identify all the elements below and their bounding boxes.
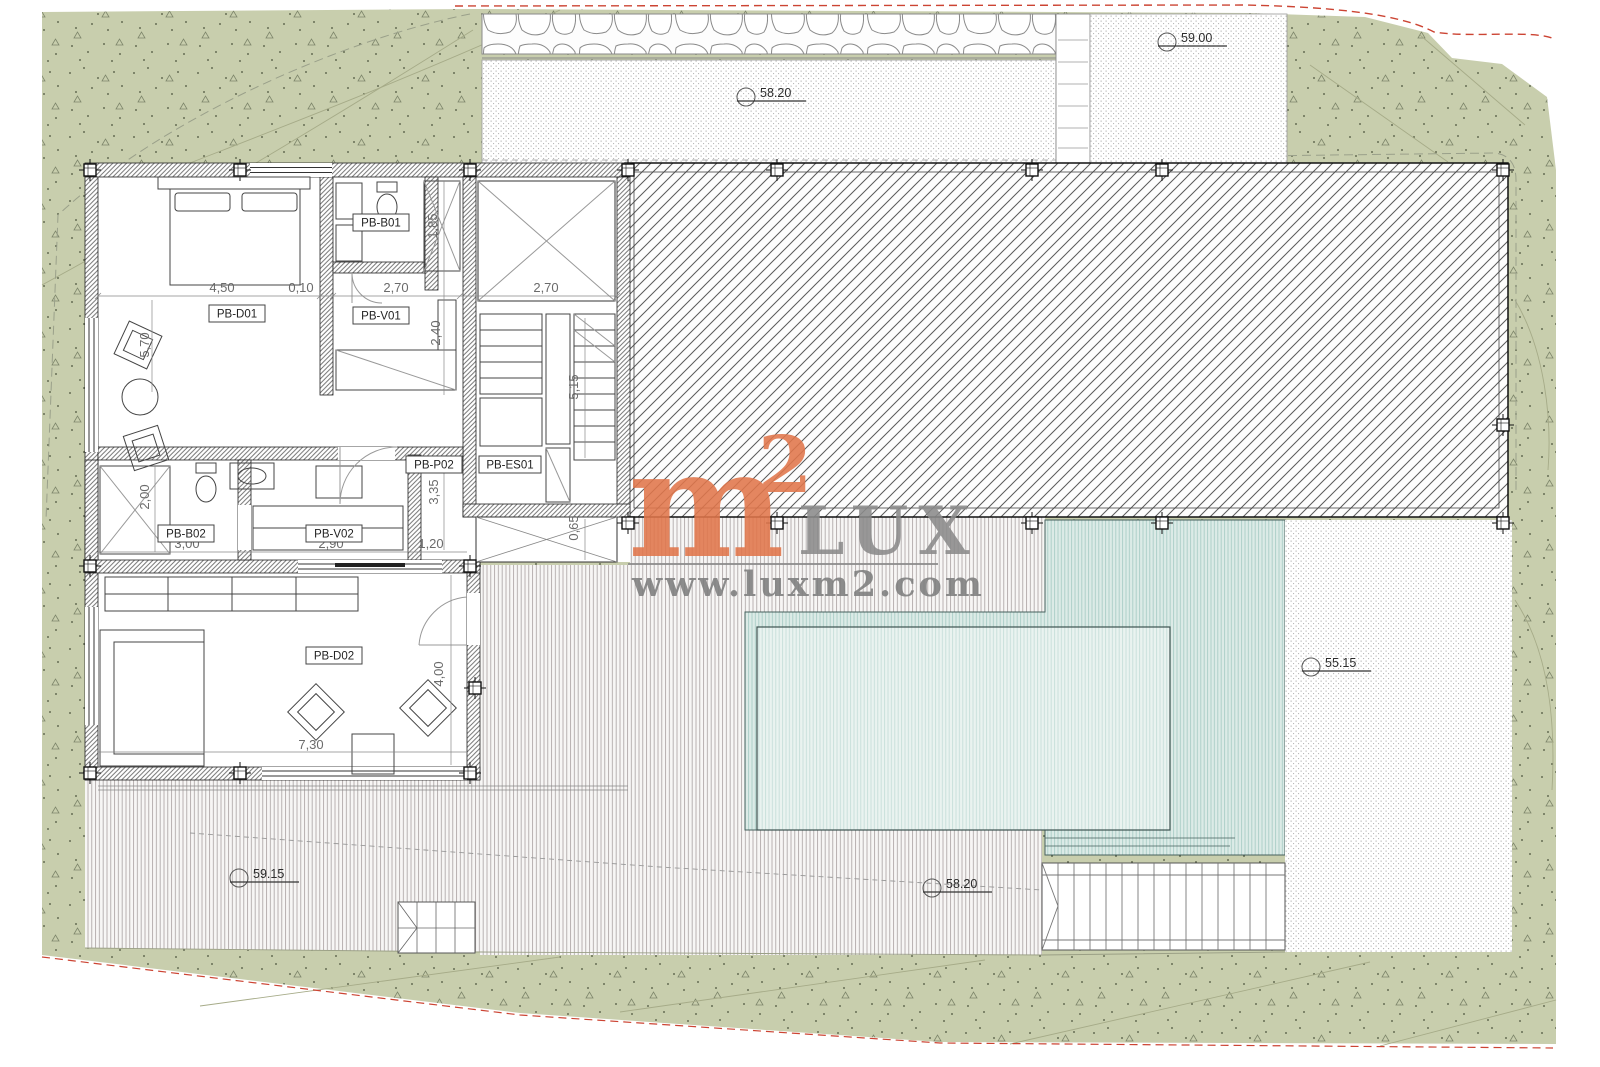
- svg-text:PB-D01: PB-D01: [217, 309, 257, 321]
- gravel-terrace-upper: [482, 60, 1056, 163]
- room-label-pb-v02: PB-V02: [306, 525, 362, 542]
- exterior-stairs: [1042, 863, 1285, 950]
- svg-text:PB-B01: PB-B01: [361, 218, 401, 230]
- room-label-pb-b01: PB-B01: [353, 214, 409, 231]
- svg-text:PB-D02: PB-D02: [314, 651, 354, 663]
- dim-5-15: 5,15: [566, 374, 581, 399]
- room-label-pb-v01: PB-V01: [353, 307, 409, 324]
- svg-text:58.20: 58.20: [946, 877, 977, 891]
- svg-text:59.15: 59.15: [253, 867, 284, 881]
- watermark-url: www.luxm2.com: [631, 564, 985, 605]
- dim-2-00: 2,00: [137, 484, 152, 509]
- dim-4-00: 4,00: [431, 661, 446, 686]
- svg-text:55.15: 55.15: [1325, 656, 1356, 670]
- pool-basin: [757, 627, 1170, 830]
- room-label-pb-d01: PB-D01: [209, 305, 265, 322]
- site-plan-page: 4,50 0,10 2,70 2,70 1,85 2,40 5,70 3,35 …: [0, 0, 1600, 1067]
- steps-between-walls: [1056, 14, 1090, 163]
- dim-0-10: 0,10: [288, 280, 313, 295]
- svg-text:PB-V01: PB-V01: [361, 311, 401, 323]
- svg-text:59.00: 59.00: [1181, 31, 1212, 45]
- dim-2-70-b: 2,70: [533, 280, 558, 295]
- dim-2-70-a: 2,70: [383, 280, 408, 295]
- svg-text:PB-B02: PB-B02: [166, 529, 206, 541]
- room-label-pb-es01: PB-ES01: [479, 456, 541, 473]
- dim-1-85: 1,85: [425, 213, 440, 238]
- svg-text:PB-V02: PB-V02: [314, 529, 354, 541]
- dim-4-50: 4,50: [209, 280, 234, 295]
- svg-text:PB-P02: PB-P02: [414, 460, 454, 472]
- svg-text:PB-ES01: PB-ES01: [486, 460, 533, 472]
- room-label-pb-b02: PB-B02: [158, 525, 214, 542]
- deck-grate: [398, 902, 475, 953]
- svg-text:58.20: 58.20: [760, 86, 791, 100]
- gravel-terrace-lower: [1285, 520, 1512, 952]
- stone-retaining-wall: [482, 14, 1056, 58]
- dim-2-40: 2,40: [428, 320, 443, 345]
- dim-3-35: 3,35: [426, 479, 441, 504]
- room-label-pb-p02: PB-P02: [406, 456, 462, 473]
- room-label-pb-d02: PB-D02: [306, 647, 362, 664]
- watermark-lux: LUX: [798, 492, 980, 570]
- dim-7-30: 7,30: [298, 737, 323, 752]
- parapet: [476, 517, 617, 562]
- dim-5-70: 5,70: [137, 332, 152, 357]
- dim-1-20: 1,20: [418, 536, 443, 551]
- dim-0-65: 0,65: [566, 515, 581, 540]
- floor-plan-drawing: 4,50 0,10 2,70 2,70 1,85 2,40 5,70 3,35 …: [0, 0, 1600, 1067]
